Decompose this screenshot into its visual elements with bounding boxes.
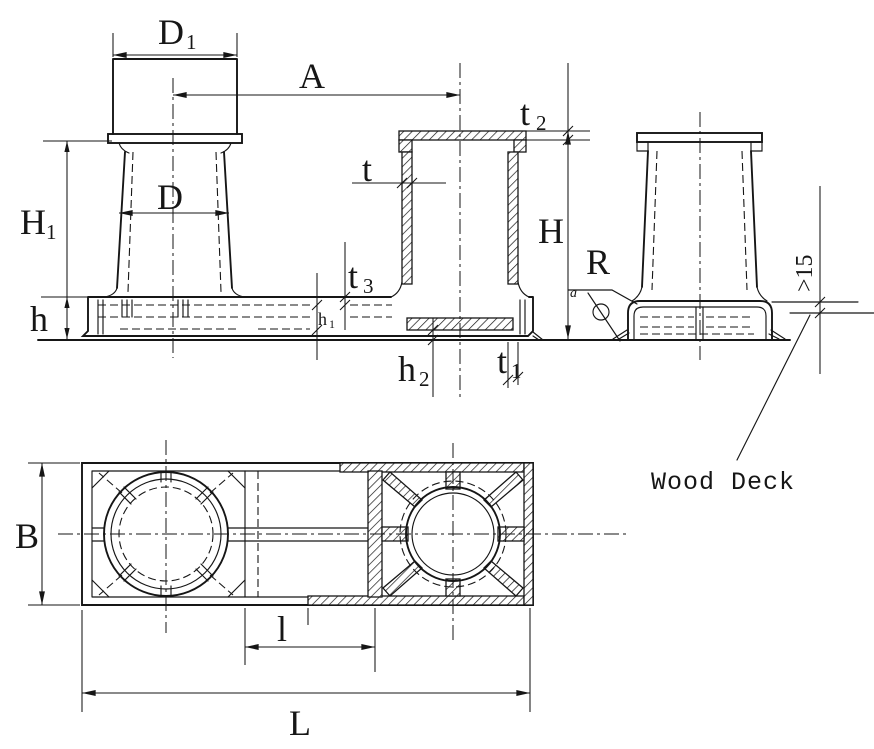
label-h2: h — [398, 349, 416, 389]
label-t1-sub: 1 — [511, 359, 522, 383]
label-h1-height-sub: 1 — [46, 220, 57, 244]
label-b-width: B — [15, 516, 39, 556]
label-h1-height: H — [20, 202, 46, 242]
label-t2: t — [520, 93, 530, 133]
front-view — [38, 33, 790, 397]
label-l-length: L — [289, 703, 311, 743]
label-l-spacing: l — [277, 609, 287, 649]
label-t3: t — [348, 256, 358, 296]
label-h-base: h — [30, 299, 48, 339]
label-t3-sub: 3 — [363, 274, 374, 298]
label-h-height: H — [538, 211, 564, 251]
label-wood-deck: Wood Deck — [651, 468, 795, 497]
label-t2-sub: 2 — [536, 111, 547, 135]
label-t: t — [362, 149, 372, 189]
weld-callout — [568, 290, 637, 341]
label-a-spacing: A — [299, 56, 325, 96]
wood-deck-lines — [737, 186, 874, 460]
label-a-weld: a — [570, 286, 577, 301]
dimension-labels: D 1 A t 2 t D H 1 H h t 3 h 1 h 2 t 1 R … — [15, 12, 818, 743]
engineering-drawing-canvas: D 1 A t 2 t D H 1 H h t 3 h 1 h 2 t 1 R … — [0, 0, 874, 749]
label-h1-small: h — [318, 309, 327, 329]
side-view — [568, 112, 874, 460]
label-h1-small-sub: 1 — [329, 317, 335, 331]
weld-fillet-strokes — [613, 330, 785, 339]
drawing-page: D 1 A t 2 t D H 1 H h t 3 h 1 h 2 t 1 R … — [0, 0, 874, 749]
plan-view — [28, 440, 628, 712]
label-d: D — [157, 177, 183, 217]
label-r-radius: R — [586, 242, 610, 282]
label-d1-sub: 1 — [186, 30, 197, 54]
label-deck-min: >15 — [792, 254, 818, 292]
label-t1: t — [497, 341, 507, 381]
label-d1: D — [158, 12, 184, 52]
label-h2-sub: 2 — [419, 367, 430, 391]
